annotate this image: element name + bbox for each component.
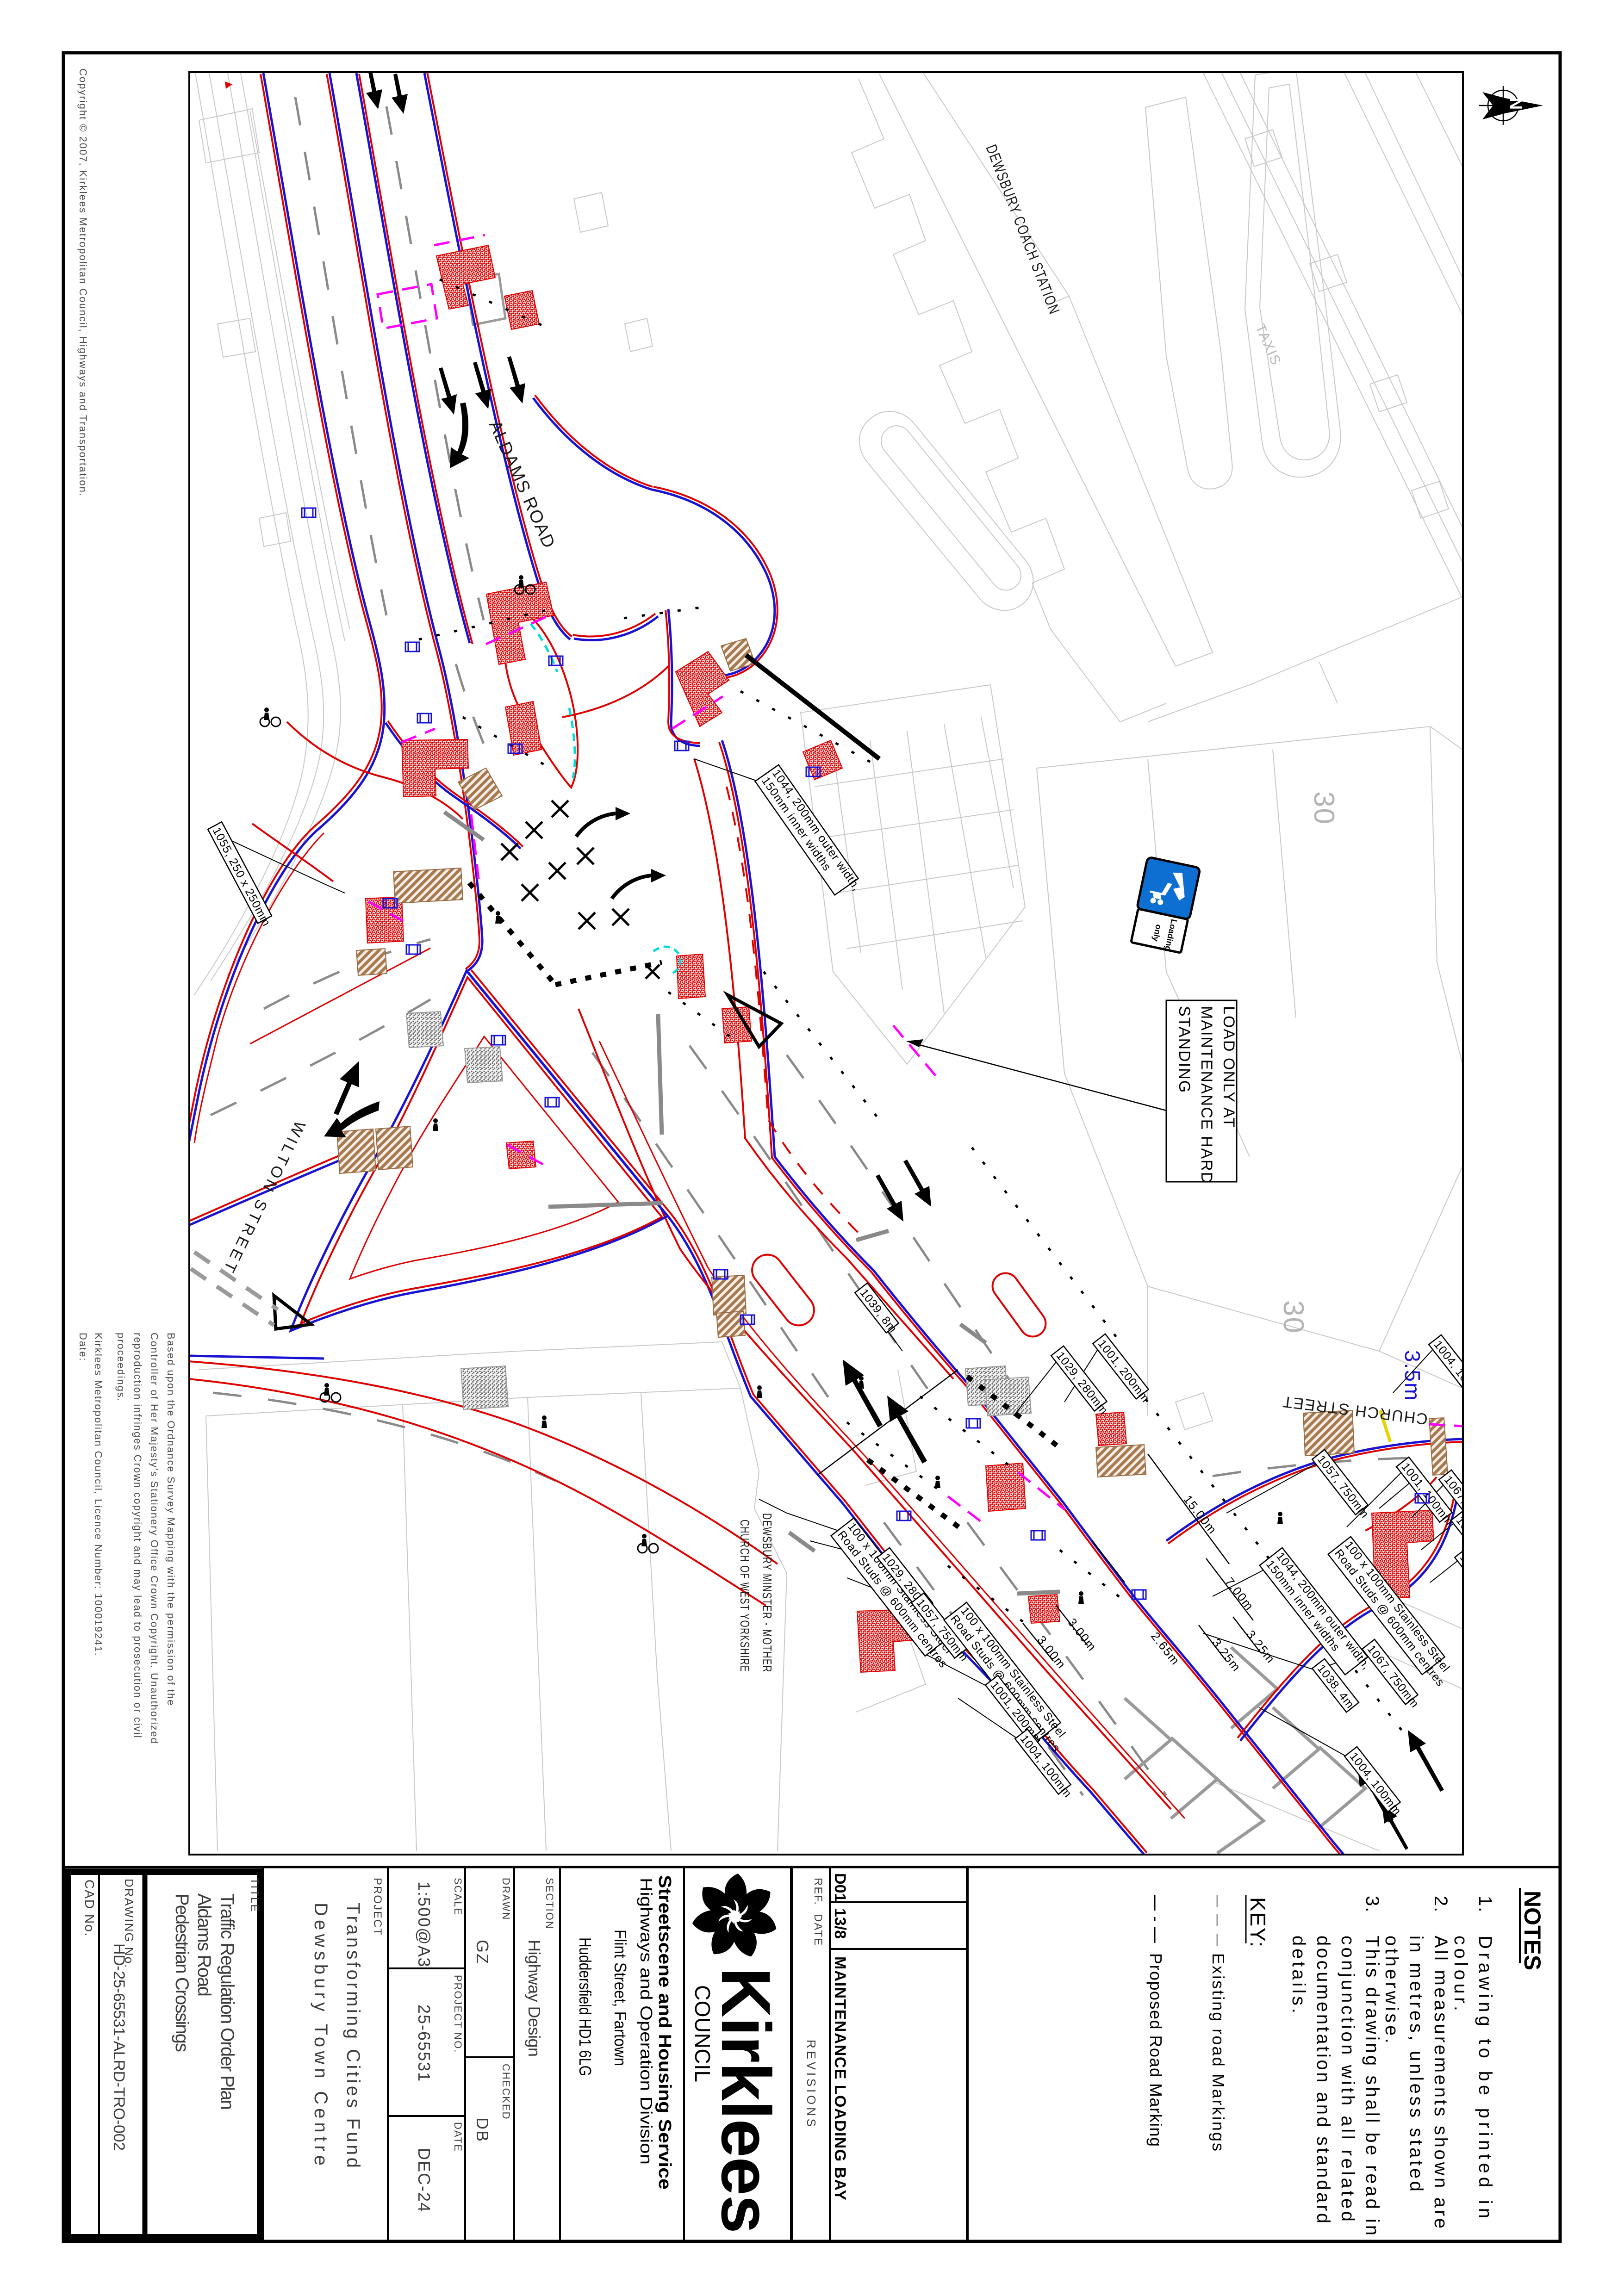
svg-text:D01: D01 (831, 1873, 849, 1902)
svg-text:Highways and Operation Divisio: Highways and Operation Division (637, 1878, 656, 2165)
svg-text:Drawing to be printed in: Drawing to be printed in (1475, 1936, 1495, 2219)
svg-text:documentation and standard: documentation and standard (1313, 1936, 1333, 2224)
svg-text:Traffic Regulation Order Pl: Traffic Regulation Order Plan (217, 1893, 237, 2111)
svg-text:All measurements shown are: All measurements shown are (1431, 1936, 1451, 2229)
svg-text:reproduction infringes Crown c: reproduction infringes Crown copyright a… (132, 1333, 143, 1739)
svg-text:Kirklees: Kirklees (707, 1967, 785, 2234)
svg-text:1:500@A3: 1:500@A3 (415, 1881, 434, 1968)
svg-text:3.5m: 3.5m (1400, 1350, 1425, 1401)
svg-text:TITLE: TITLE (248, 1878, 261, 1912)
svg-text:Controller of Her Majesty's St: Controller of Her Majesty's Stationery O… (149, 1333, 160, 1744)
svg-text:N: N (1506, 98, 1525, 110)
svg-text:CHECKED: CHECKED (500, 2064, 512, 2120)
svg-text:in metres, unless stated: in metres, unless stated (1406, 1936, 1426, 2192)
svg-text:DATE: DATE (812, 1914, 824, 1946)
svg-text:STANDING: STANDING (1176, 1006, 1193, 1093)
svg-text:LOAD ONLY AT: LOAD ONLY AT (1220, 1006, 1238, 1128)
svg-text:30: 30 (1277, 1300, 1309, 1334)
svg-text:COUNCIL: COUNCIL (691, 1985, 715, 2086)
svg-text:Based upon the Ordnance Sur: Based upon the Ordnance Survey Mapping w… (165, 1333, 177, 1706)
svg-text:Date:: Date: (77, 1333, 89, 1362)
svg-text:SCALE: SCALE (452, 1878, 464, 1916)
svg-text:Aldams Road: Aldams Road (194, 1893, 214, 1998)
svg-text:PROJECT: PROJECT (371, 1878, 384, 1936)
svg-text:DRAWN: DRAWN (500, 1878, 512, 1920)
svg-text:HD-25-65531-ALRD-TRO-002: HD-25-65531-ALRD-TRO-002 (110, 1943, 128, 2152)
svg-text:Pedestrian Crossings: Pedestrian Crossings (172, 1893, 192, 2053)
svg-text:13/8: 13/8 (831, 1908, 849, 1939)
svg-text:2.: 2. (1431, 1896, 1451, 1913)
svg-text:Existing road Markings: Existing road Markings (1209, 1953, 1228, 2152)
svg-text:MAINTENANCE HARD: MAINTENANCE HARD (1198, 1006, 1215, 1184)
svg-text:REF.: REF. (812, 1878, 824, 1905)
svg-text:REVISIONS: REVISIONS (804, 2040, 818, 2128)
svg-text:DATE: DATE (452, 2122, 464, 2152)
svg-text:SECTION: SECTION (544, 1878, 555, 1930)
svg-text:1.: 1. (1475, 1896, 1495, 1913)
svg-text:DEWSBURY MINSTER - MOTHER: DEWSBURY MINSTER - MOTHER (760, 1513, 774, 1673)
svg-text:Kirklees Metropolitan Council,: Kirklees Metropolitan Council, Licence N… (93, 1333, 104, 1657)
svg-text:Huddersfield HD1 6LG: Huddersfield HD1 6LG (576, 1937, 595, 2076)
svg-text:Proposed Road Marking: Proposed Road Marking (1146, 1953, 1165, 2147)
svg-text:3.: 3. (1362, 1896, 1382, 1913)
svg-text:KEY:: KEY: (1246, 1897, 1270, 1948)
svg-text:MAINTENANCE LOADING BAY: MAINTENANCE LOADING BAY (831, 1956, 849, 2200)
svg-text:CAD No.: CAD No. (82, 1880, 97, 1937)
svg-text:PROJECT NO.: PROJECT NO. (452, 1975, 464, 2054)
svg-text:Streetscene and Housing Servic: Streetscene and Housing Service (655, 1875, 674, 2190)
svg-text:Highway Design: Highway Design (525, 1940, 544, 2058)
svg-text:GZ: GZ (473, 1940, 492, 1965)
svg-text:30: 30 (1308, 791, 1340, 825)
svg-text:Transforming Cities Fund: Transforming Cities Fund (343, 1903, 363, 2169)
svg-text:Copyright © 2007, Kirklees Met: Copyright © 2007, Kirklees Metropolitan … (77, 68, 89, 497)
svg-text:CHURCH OF WEST YORKSHIRE: CHURCH OF WEST YORKSHIRE (738, 1520, 752, 1672)
svg-text:proceedings.: proceedings. (115, 1333, 127, 1402)
svg-text:NOTES: NOTES (1519, 1891, 1545, 1970)
svg-text:25-65531: 25-65531 (415, 2004, 434, 2082)
svg-text:DEC-24: DEC-24 (415, 2148, 434, 2213)
svg-text:DB: DB (473, 2117, 492, 2142)
svg-text:Flint Street, Fartown: Flint Street, Fartown (611, 1930, 630, 2066)
